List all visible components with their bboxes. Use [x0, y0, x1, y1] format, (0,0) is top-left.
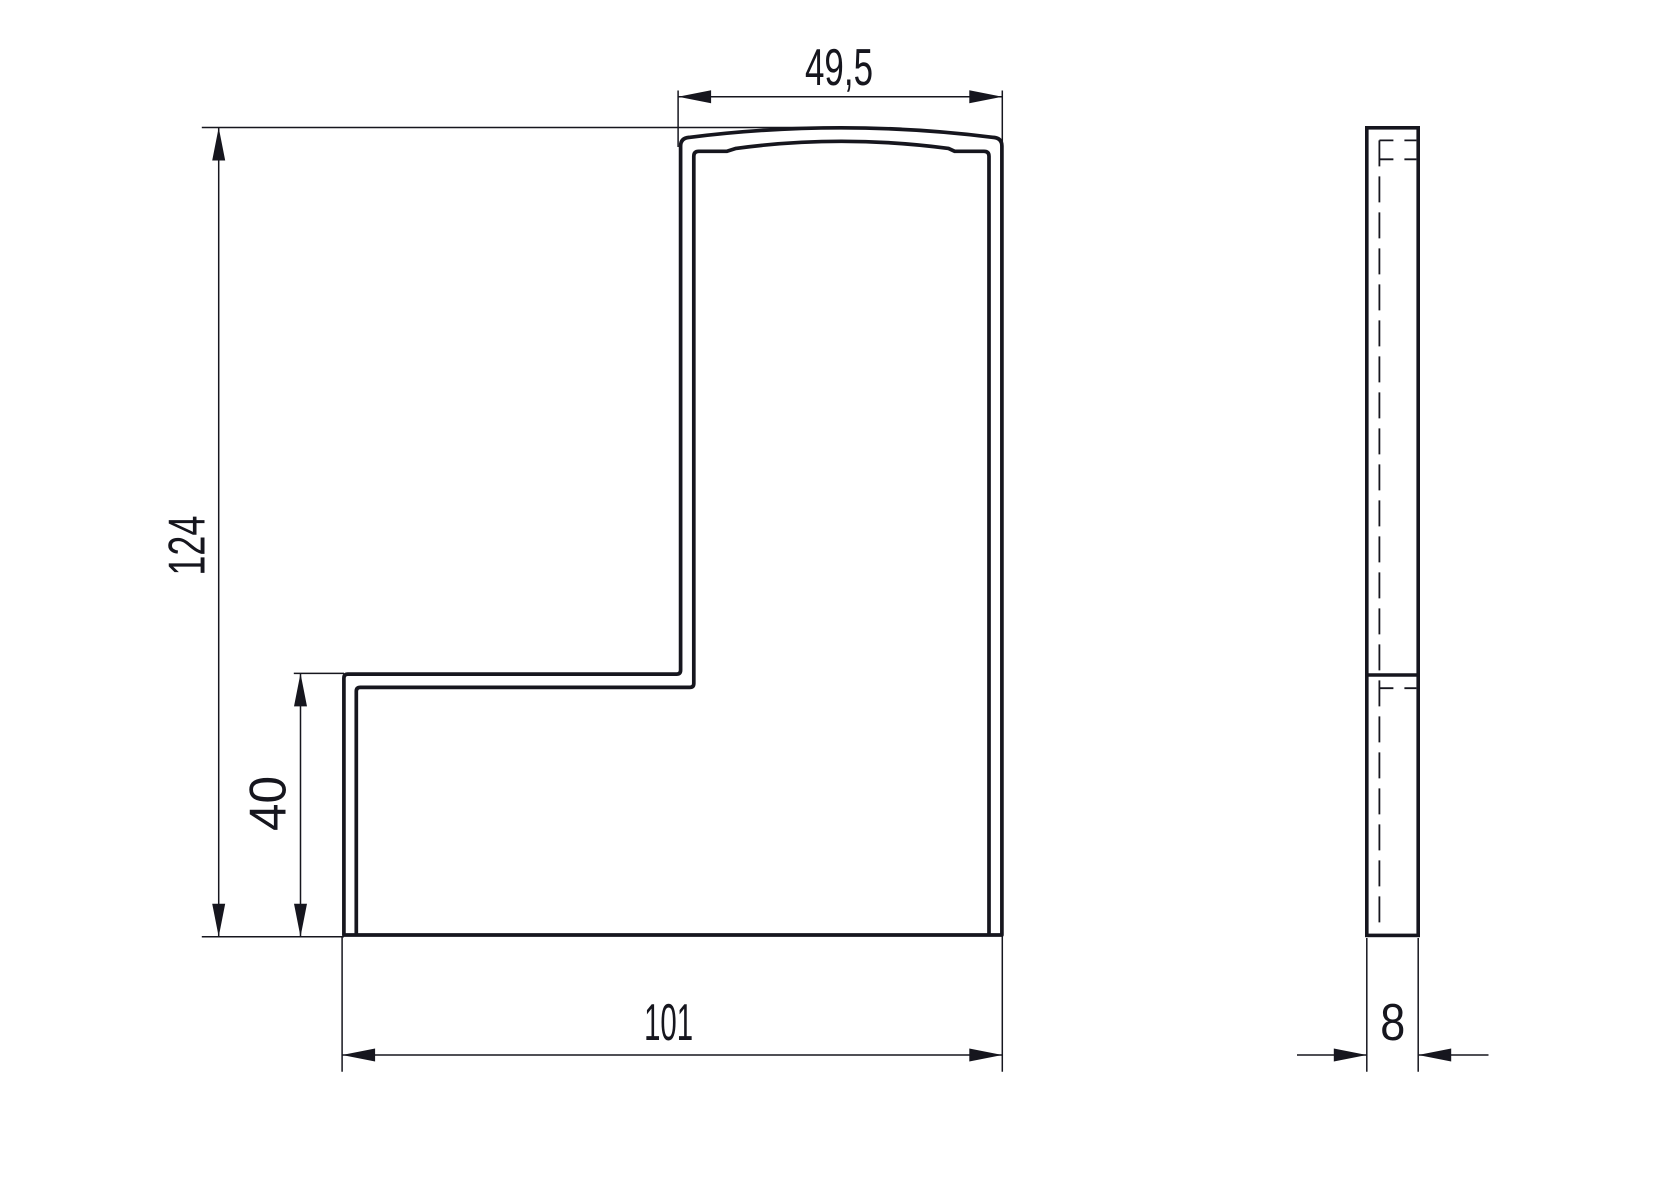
svg-text:49,5: 49,5 [805, 38, 873, 96]
svg-text:40: 40 [240, 776, 298, 831]
svg-text:8: 8 [1380, 993, 1405, 1051]
svg-text:124: 124 [159, 516, 217, 576]
svg-text:101: 101 [644, 993, 693, 1051]
